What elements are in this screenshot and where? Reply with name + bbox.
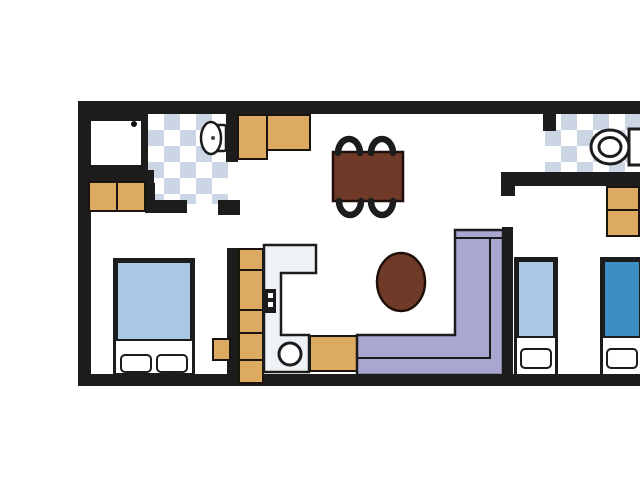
coffee-table: [377, 253, 425, 311]
wash-basin: [629, 129, 640, 165]
kitchen-sink: [279, 343, 301, 365]
chair-bottom-right: [371, 201, 393, 215]
floor-plan: [0, 0, 640, 480]
chair-bottom-left: [339, 201, 361, 215]
stove-knob-1: [268, 293, 273, 298]
shower-head-icon: [131, 121, 137, 127]
sofa: [357, 230, 503, 375]
toilet-left-flush: [211, 136, 215, 140]
stove: [265, 289, 276, 313]
toilet-right-outer: [591, 130, 629, 164]
dining-table: [333, 152, 403, 201]
stove-knob-2: [268, 302, 273, 307]
furniture-layer: [0, 0, 640, 480]
